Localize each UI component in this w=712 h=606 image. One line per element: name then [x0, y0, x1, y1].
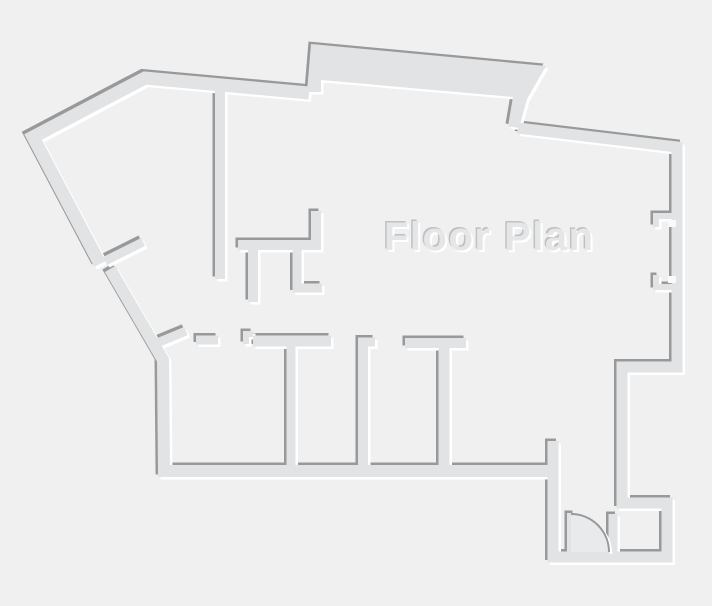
wall-top-bump-section	[307, 44, 546, 128]
window-gap-1	[668, 220, 676, 227]
window-gap-2	[668, 276, 676, 283]
wall-outer-wall-bottom-left	[113, 272, 552, 474]
floor-plan-title: Floor Plan	[384, 215, 595, 259]
wall-outer-wall-bottom-left	[110, 269, 549, 471]
floor-plan-canvas: Floor PlanFloor PlanFloor Plan	[0, 0, 712, 606]
floor-plan-page: Floor PlanFloor PlanFloor Plan	[0, 0, 712, 606]
wall-outer-wall-right	[518, 128, 677, 557]
wall-outer-wall-right	[516, 126, 675, 555]
wall-outer-wall-bottom-left	[108, 267, 547, 469]
walls-layer-fill	[33, 44, 677, 557]
wall-inner-L-wall	[236, 209, 314, 243]
wall-outer-wall-top-left	[31, 76, 307, 262]
